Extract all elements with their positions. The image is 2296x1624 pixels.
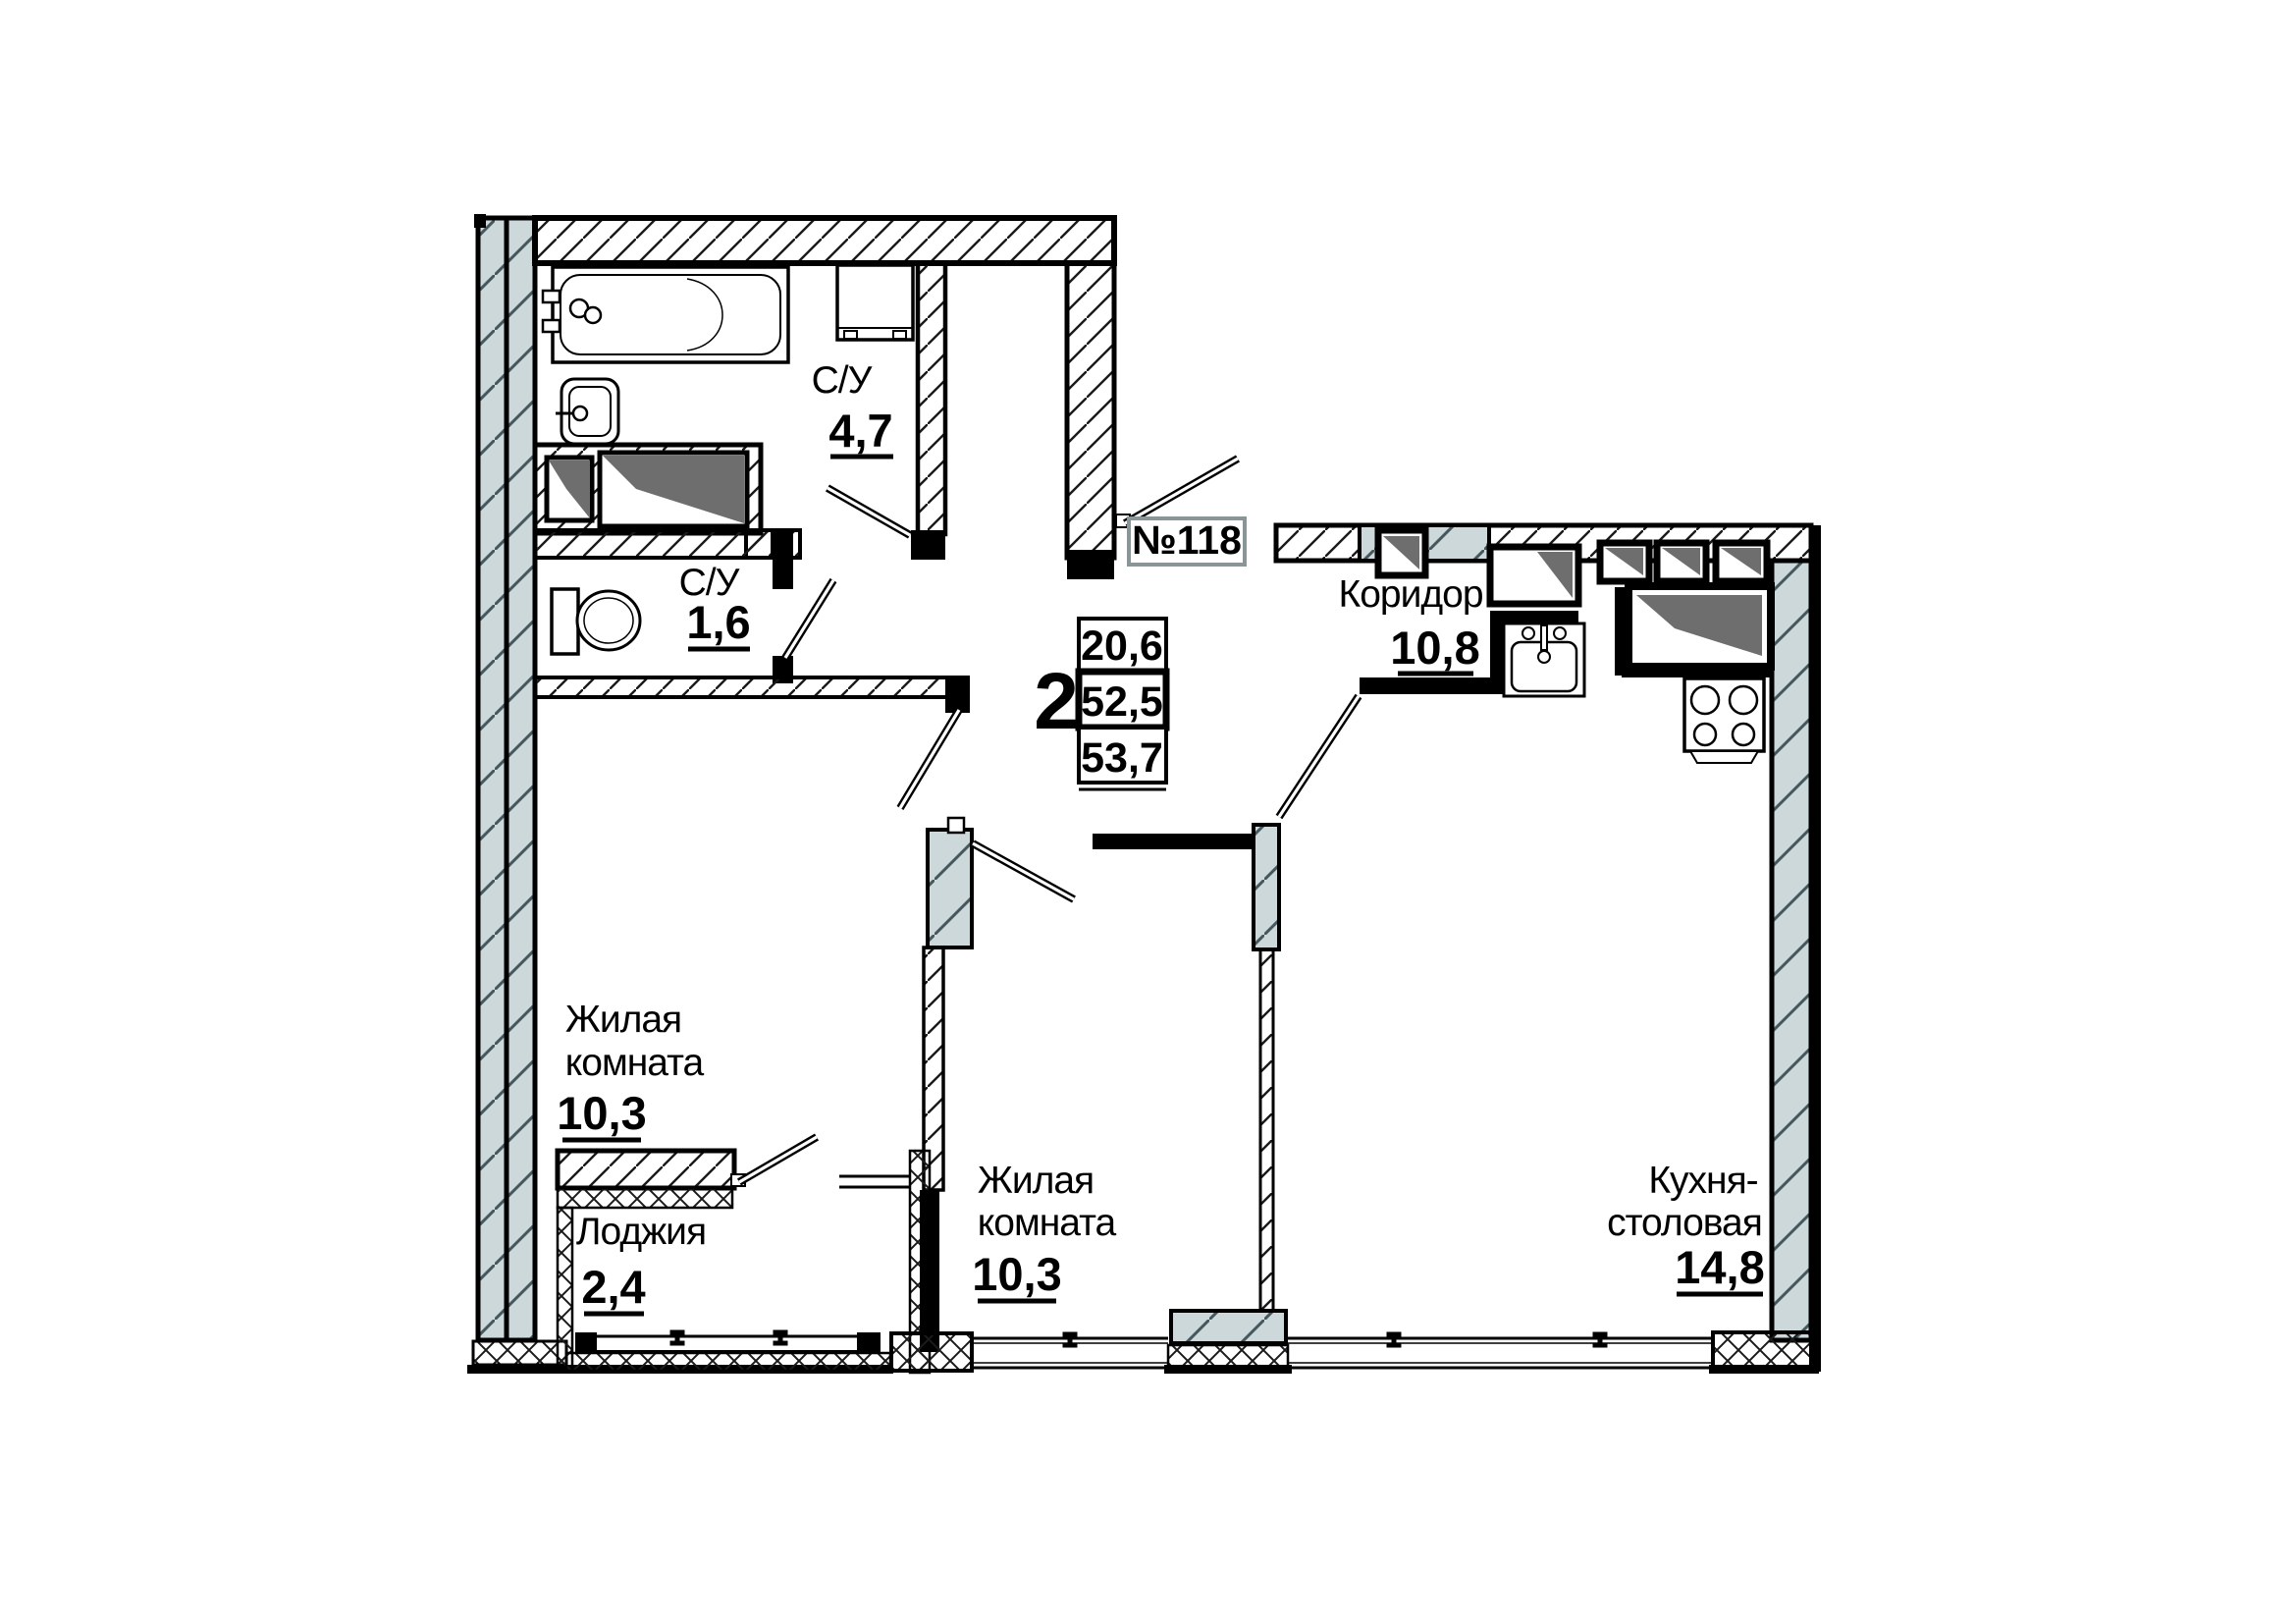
entry-wall (1067, 263, 1114, 558)
toilet-icon (552, 589, 640, 654)
kitchen-sink-icon (1504, 623, 1584, 696)
washing-machine-icon (837, 265, 913, 340)
loggia-name: Лоджия (576, 1211, 706, 1253)
bathroom-area: 4,7 (828, 405, 892, 457)
loggia-area: 2,4 (581, 1261, 645, 1313)
top-exterior-wall (535, 218, 1114, 263)
kitchen-area: 14,8 (1675, 1241, 1764, 1293)
right-exterior-wall (1772, 561, 1811, 1340)
apartment-number-badge: №118 (1129, 517, 1245, 565)
pilaster-left (928, 830, 972, 947)
living2-name-line1: Жилая (978, 1160, 1094, 1202)
stove-icon (1684, 678, 1764, 763)
pilaster-right (1254, 825, 1279, 949)
bathroom-right-wall (918, 263, 945, 534)
area-total-value: 53,7 (1081, 734, 1163, 782)
wc-bottom-wall (535, 677, 947, 697)
wc-top-wall (535, 530, 773, 558)
living1-name-line1: Жилая (565, 999, 681, 1041)
floor-plan-page: №118 2 20,6 52,5 53,7 С/У 4,7 С/У 1,6 Ко… (0, 0, 2296, 1624)
area-living-value: 20,6 (1081, 623, 1163, 670)
kitchen-name-line2: столовая (1607, 1202, 1762, 1244)
living2-area: 10,3 (972, 1248, 1061, 1300)
living2-name-line2: комната (978, 1202, 1117, 1244)
middleroom-top-wall (1093, 834, 1261, 849)
floor-plan-drawing: №118 2 20,6 52,5 53,7 С/У 4,7 С/У 1,6 Ко… (0, 0, 2296, 1624)
vent-shaft-kitchen (1629, 586, 1771, 667)
living1-name-line2: комната (565, 1042, 705, 1084)
bathroom-name: С/У (812, 359, 873, 402)
loggia-top-wall (558, 1151, 734, 1188)
corridor-area: 10,8 (1390, 622, 1479, 674)
corridor-name: Коридор (1338, 573, 1482, 616)
area-usable-value: 52,5 (1081, 678, 1163, 726)
bathroom-sink-icon (556, 379, 618, 444)
living1-area: 10,3 (557, 1087, 646, 1139)
wc-area: 1,6 (686, 596, 750, 648)
apartment-number: №118 (1132, 517, 1242, 563)
rooms-count: 2 (1034, 657, 1079, 746)
vent-shaft-bathroom (535, 445, 761, 533)
corridor-bottom-wall (1360, 677, 1490, 694)
kitchen-name-line1: Кухня- (1648, 1160, 1757, 1202)
background (0, 0, 2296, 1624)
bathtub-icon (543, 267, 788, 362)
